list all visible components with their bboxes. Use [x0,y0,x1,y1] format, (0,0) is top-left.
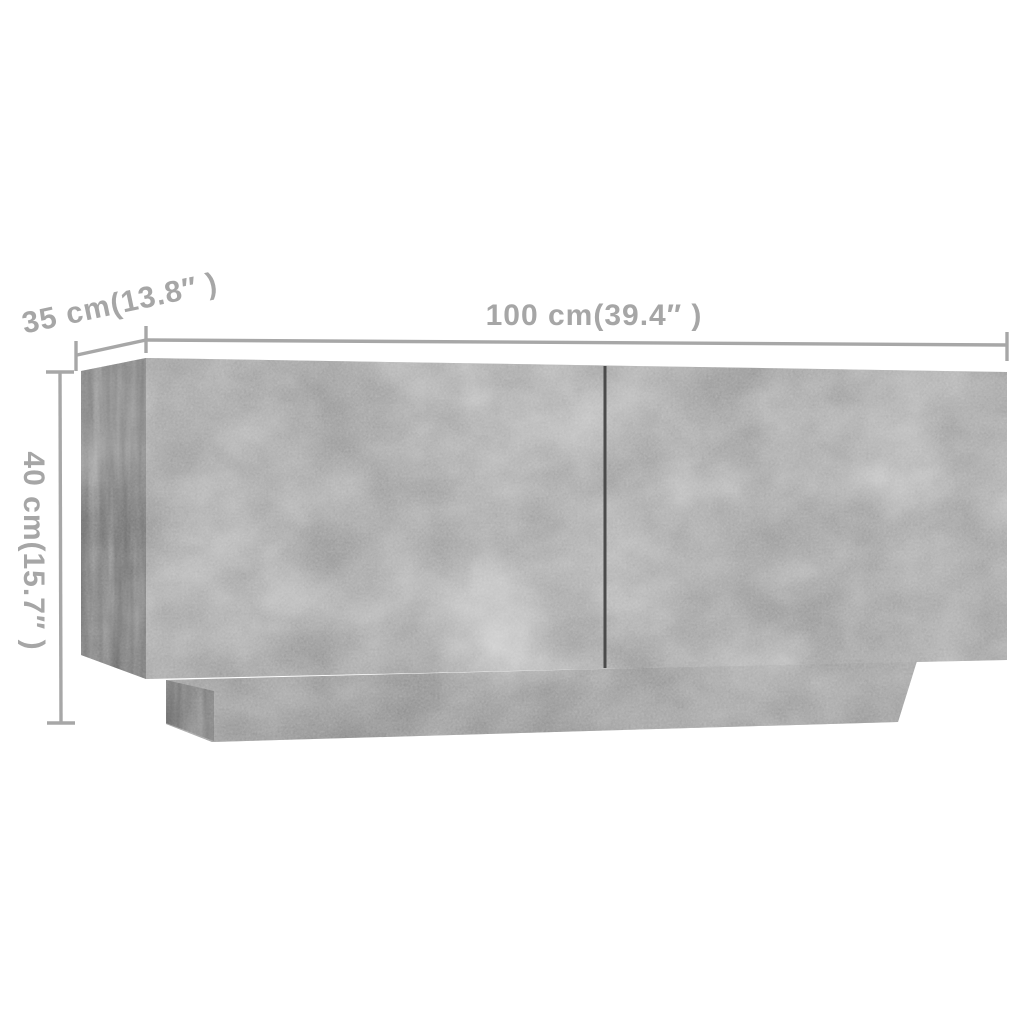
height-dimension-label: 40 cm(15.7″ ) [18,451,48,650]
width-dimension-line [146,340,1007,345]
height-dimension-line [60,372,61,723]
product-image: 100 cm(39.4″ ) 35 cm(13.8″ ) 40 cm(15.7″… [0,0,1024,1024]
depth-dimension-line [77,340,146,355]
width-dimension-label: 100 cm(39.4″ ) [486,301,703,331]
cabinet-render [0,0,1024,1024]
